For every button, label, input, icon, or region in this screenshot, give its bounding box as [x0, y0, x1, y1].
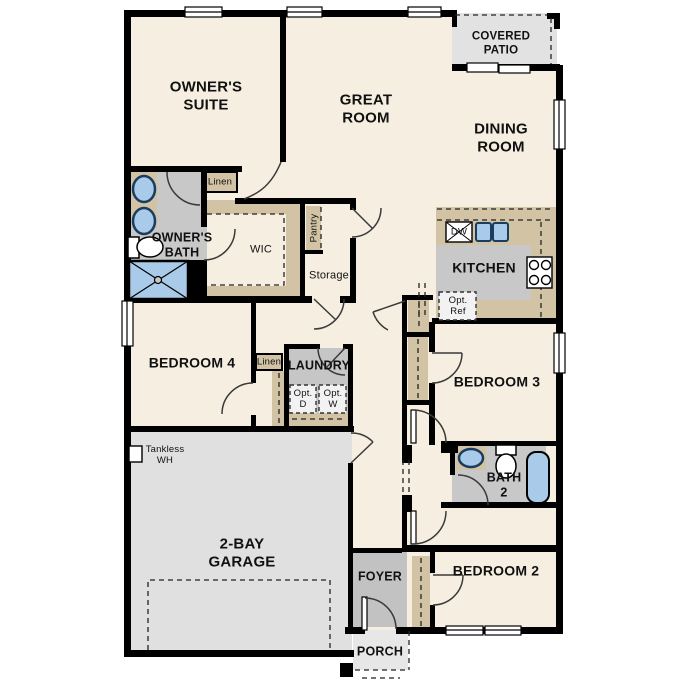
opt-fridge-box — [439, 292, 476, 320]
window — [408, 7, 441, 17]
stove — [527, 257, 552, 288]
opt-dryer-box — [290, 385, 316, 413]
owners-toilet — [128, 237, 163, 258]
covered-patio-floor — [452, 13, 557, 71]
window — [185, 7, 222, 17]
pantry-shelf — [306, 206, 321, 250]
garage-floor — [131, 432, 352, 656]
kitchen-sink — [476, 223, 508, 241]
bedroom2-closet — [412, 556, 430, 628]
wic-shelf-bottom — [207, 286, 300, 296]
window — [446, 626, 483, 635]
window — [554, 333, 565, 373]
bath2-tub — [527, 452, 549, 503]
window — [485, 626, 521, 635]
sliding-door — [467, 63, 530, 73]
tankless-wh-unit — [129, 446, 142, 462]
bath2-toilet — [496, 445, 516, 478]
linen-upper-cabinet — [203, 172, 237, 192]
wic-shelf-right — [286, 200, 300, 288]
window — [122, 301, 133, 346]
porch-floor — [353, 630, 408, 670]
dishwasher — [446, 222, 472, 242]
owners-shower — [129, 261, 188, 299]
floorplan-graphics — [0, 0, 687, 687]
foyer-floor — [352, 552, 407, 627]
floor-fills — [128, 12, 557, 670]
bath2-sink — [459, 449, 483, 467]
kitchen-floor — [436, 245, 531, 300]
opt-washer-box — [319, 385, 346, 413]
linen-hall-cabinet — [256, 354, 282, 370]
window — [554, 100, 565, 149]
window — [287, 7, 322, 17]
floorplan: OWNER'S SUITE GREAT ROOM DINING ROOM COV… — [0, 0, 687, 687]
